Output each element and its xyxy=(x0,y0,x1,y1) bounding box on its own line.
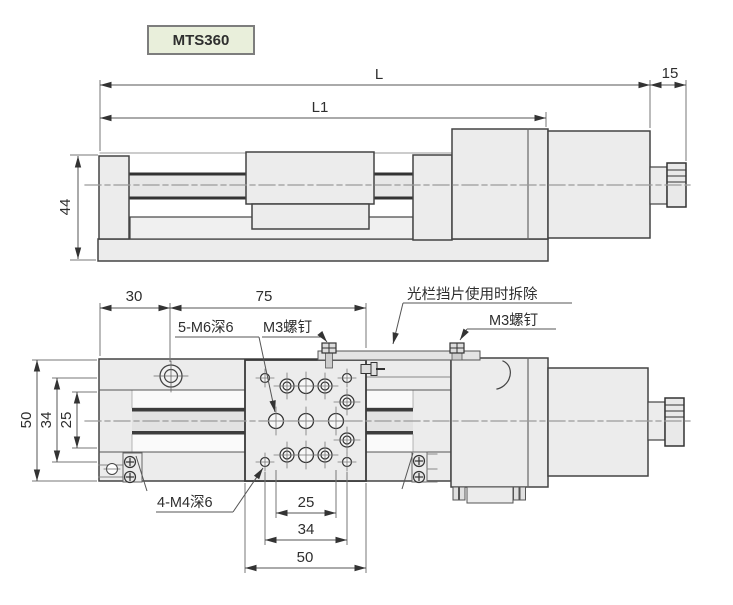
carriage-top xyxy=(246,152,374,204)
dim-34-bottom: 34 xyxy=(298,521,315,538)
left-end-block xyxy=(99,156,129,239)
dim-50-bottom: 50 xyxy=(297,549,314,566)
label-m3-screw-right: M3螺钉 xyxy=(489,312,538,329)
label-m4-holes: 4-M4深6 xyxy=(157,494,213,511)
dim-25-bottom: 25 xyxy=(298,494,315,511)
right-inner-block xyxy=(413,155,452,240)
plan-view xyxy=(85,343,690,503)
label-m6-holes: 5-M6深6 xyxy=(178,319,234,336)
model-badge: MTS360 xyxy=(148,26,254,54)
motor-body-plan xyxy=(548,368,648,476)
carriage-bottom xyxy=(252,204,369,229)
side-view xyxy=(85,129,690,261)
dim-44: 44 xyxy=(57,199,74,216)
technical-drawing-page: MTS360 xyxy=(0,0,733,605)
mts360-drawing: MTS360 xyxy=(0,0,733,605)
model-badge-label: MTS360 xyxy=(173,32,230,49)
label-shutter-note: 光栏挡片使用时拆除 xyxy=(407,286,538,303)
dim-L: L xyxy=(375,66,383,83)
motor-bracket xyxy=(452,129,548,239)
dim-50-left: 50 xyxy=(18,412,35,429)
dim-75: 75 xyxy=(256,288,273,305)
base-plate xyxy=(98,239,548,261)
dim-15: 15 xyxy=(662,65,679,82)
shutter-screw-right xyxy=(450,343,464,360)
dim-L1: L1 xyxy=(312,99,329,116)
dim-34-left: 34 xyxy=(38,412,55,429)
dim-25-left: 25 xyxy=(58,412,75,429)
label-m3-screw-left: M3螺钉 xyxy=(263,319,312,336)
motor-bracket-plan xyxy=(451,358,548,487)
dim-30: 30 xyxy=(126,288,143,305)
dsub-connector xyxy=(453,487,526,503)
